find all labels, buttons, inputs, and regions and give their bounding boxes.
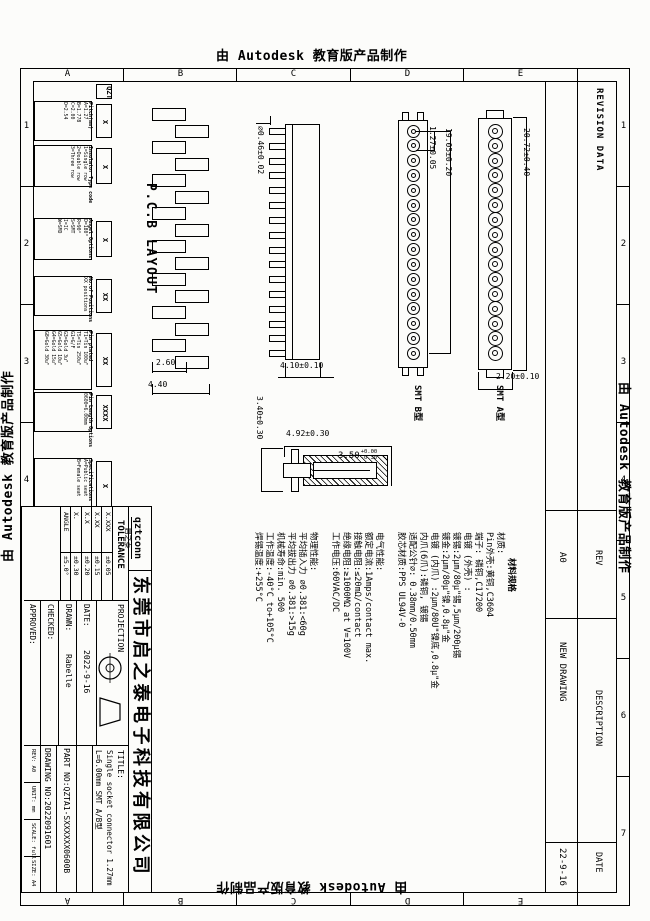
dimension-line [513, 370, 527, 371]
revision-header-date: DATE [594, 852, 603, 872]
tolerance-row-value: ±0.15 [94, 556, 101, 576]
order-field-text: Pin Length Options0600=6.00mm [35, 393, 93, 433]
side-view-pin [269, 202, 286, 209]
title-block-line [92, 745, 93, 893]
order-field-option: T5=Tin 250u" [74, 331, 80, 391]
side-view-pin [269, 128, 286, 135]
zone-tick [20, 422, 33, 423]
smt-b-tab [402, 367, 409, 376]
side-view-pin [269, 306, 286, 313]
tolerance-row-value: ±5.0° [62, 556, 69, 576]
zone-tick [463, 68, 464, 81]
dimension-line [209, 384, 210, 395]
order-field-option: G3=Gold 3u" [61, 331, 67, 391]
zone-letter-top: E [514, 70, 527, 79]
zone-tick [123, 68, 124, 81]
order-field-description-box: Angel OptionsD=180°R=90°S=SMTI=ICW=SMD [34, 218, 92, 260]
zone-number-right: 5 [617, 594, 630, 603]
dimension-line [391, 446, 392, 486]
approved-label: APPROVED: [29, 604, 37, 645]
order-field-code-box: X [96, 221, 112, 257]
material-note-line: Pin外壳:黄铜,C3604 [483, 532, 494, 790]
side-view-pin [269, 350, 286, 357]
order-field-text: Angel OptionsD=180°R=90°S=SMTI=ICW=SMD [35, 219, 93, 261]
pcb-pad [175, 290, 209, 303]
material-note-line: 电气性能: [373, 532, 384, 790]
cad-drawing-sheet: AABBCCDDEE11223344556677 QZTPitch(mm)A=1… [0, 0, 650, 921]
zone-letter-bottom: D [401, 895, 414, 904]
order-field-description-box: Insulator Type code1=Single row2=Double … [34, 145, 92, 187]
zone-tick [617, 776, 630, 777]
order-field-option: 3=Three row [67, 146, 73, 188]
company-logo-text: qztconn [131, 517, 142, 559]
dimension-line [278, 377, 334, 378]
material-note-line [318, 532, 329, 790]
zone-tick [617, 658, 630, 659]
zone-number-right: 1 [617, 122, 630, 131]
material-note-line: 机械寿命:min. 500 [274, 532, 285, 790]
order-field-code: XX [97, 280, 113, 314]
side-view-pin [269, 187, 286, 194]
mini-cell: REV: A0 [30, 749, 36, 772]
order-field-option: XX positions [80, 277, 86, 317]
smt-a-label: SMT A型 [494, 385, 503, 421]
zone-letter-bottom: B [174, 895, 187, 904]
autodesk-banner-bottom: 由 Autodesk 教育版产品制作 [216, 880, 407, 893]
order-field-option: G4=Gold 15u" [48, 331, 54, 391]
mini-cell: SCALE: full [30, 823, 36, 859]
material-note-line: 镀金:2μm/80μ"镍,0.8μ"金 [439, 532, 450, 790]
order-field-title: Specifications [87, 459, 93, 513]
pcb-pad [175, 125, 209, 138]
side-view-pin [269, 261, 286, 268]
company-logo: qztconn 启之泰 [128, 509, 150, 567]
order-field-option: B=1.778 [74, 102, 80, 142]
title-block-line [40, 600, 41, 745]
company-name: 东莞市启之泰电子科技有限公司 [131, 576, 149, 877]
revision-header-description: DESCRIPTION [594, 690, 603, 746]
title-block-line [81, 506, 82, 600]
dimension-line [270, 116, 271, 125]
material-note-line: 胶芯材质:PPS UL94V-0 [395, 532, 406, 790]
zone-tick [577, 68, 578, 81]
dim-section-height: 3.40±0.30 [255, 396, 263, 439]
title-block-line [24, 782, 40, 783]
dim-side-height: 4.10±0.10 [280, 362, 323, 370]
revision-title: REVISION DATA [594, 88, 603, 171]
smt-b-label: SMT B型 [412, 385, 421, 421]
order-field-code-box: X [96, 148, 112, 184]
zone-number-left: 3 [20, 358, 33, 367]
order-field-code-box: XX [96, 279, 112, 313]
title-line2: L=6.00mm SMT A/B型 [95, 750, 103, 830]
order-field-text: Pitch(mm)A=1.27B=1.778C=2.00D=2.54 [35, 102, 93, 142]
material-notes-lines: 材质:Pin外壳:黄铜,C3604端子: 磷铜,C17200电镀 (外壳) :镀… [252, 532, 505, 790]
mini-cell: UNIT: mm [30, 786, 36, 813]
zone-number-right: 3 [617, 358, 630, 367]
dim-pitch: 1.27±0.05 [428, 126, 436, 169]
dim-pin-diameter: ∅0.46±0.02 [256, 126, 264, 174]
revision-entry-rev: A0 [557, 552, 566, 563]
material-note-line: 平均插入力 ∅0.381:<60g [296, 532, 307, 790]
zone-number-right: 6 [617, 712, 630, 721]
dim-span: 19.05±0.20 [444, 128, 452, 176]
checked-label: CHECKED: [47, 604, 55, 640]
revision-header-rev: REV [594, 550, 603, 565]
title-block-line [101, 506, 102, 600]
order-field-option: D=180° [80, 219, 86, 261]
side-view-pin [269, 276, 286, 283]
order-field-code-box: XXXX [96, 395, 112, 429]
zone-tick [617, 186, 630, 187]
zone-tick [123, 893, 124, 906]
title-block-line [58, 600, 59, 745]
dimension-line [152, 371, 186, 372]
zone-letter-bottom: E [514, 895, 527, 904]
material-note-line: 材质: [494, 532, 505, 790]
side-view-body [285, 124, 320, 360]
material-note-line: 绝缘电阻:≥1000MΩ at V=100V [340, 532, 351, 790]
drawing-no: DRAWING NO:2022091601 [43, 748, 51, 849]
part-no: PART NO:QZTA1-SXXXXXX0600B [62, 748, 70, 873]
dimension-line [186, 362, 187, 373]
dim-section-depth: 3.50+0.00-0.30 [338, 450, 377, 461]
pcb-pad [175, 158, 209, 171]
tolerance-row-label: ANGLE [62, 512, 69, 532]
title-block-line [128, 570, 152, 571]
order-field-title: Insulator Type code [87, 146, 93, 188]
date-label: DATE: [83, 604, 91, 627]
revision-entry-date: 22-9-16 [557, 848, 566, 886]
material-note-line: 焊锡温度:+255°C [252, 532, 263, 790]
material-note-line: 接触电阻:≤20mΩ/contact [351, 532, 362, 790]
tolerance-row-label: X.X [83, 512, 90, 524]
title-block-line [60, 552, 112, 553]
material-notes-header: 材料规格 [505, 558, 516, 790]
dimension-line [478, 372, 479, 390]
dim-overall: 20.72±0.40 [522, 128, 530, 176]
material-notes: 材料规格 材质:Pin外壳:黄铜,C3604端子: 磷铜,C17200电镀 (外… [248, 532, 516, 790]
order-field-option: 1=Single row [80, 146, 86, 188]
dimension-line [261, 448, 262, 492]
order-field-description-box: Pin Length Options0600=6.00mm [34, 392, 92, 432]
autodesk-banner-left: 由 Autodesk 教育版产品制作 [2, 371, 15, 562]
order-field-text: No.of PositionsXX positions [35, 277, 93, 317]
zone-tick [577, 893, 578, 906]
order-field-text: Pin platedT1=Tin 100u"T5=Tin 250u"G1=G/F… [35, 331, 93, 391]
zone-number-right: 7 [617, 830, 630, 839]
zone-letter-top: B [174, 70, 187, 79]
order-field-description-box: Pitch(mm)A=1.27B=1.778C=2.00D=2.54 [34, 101, 92, 141]
autodesk-banner-right: 由 Autodesk 教育版产品制作 [617, 382, 630, 573]
dimension-line [256, 123, 270, 124]
dim-section-depth-value: 3.50 [338, 451, 360, 461]
drawn-label: DRAWN: [65, 604, 73, 631]
zone-tick [463, 893, 464, 906]
title-block-line [76, 600, 77, 745]
title-block-line [91, 506, 92, 600]
pcb-pad [152, 339, 186, 352]
material-note-line: 内爪(6爪):磷铜, 镀锡 [417, 532, 428, 790]
title-block-line [70, 506, 71, 600]
title-line1: Single socket connector 1.27mm [106, 750, 114, 885]
order-field-option: A=1.27 [80, 102, 86, 142]
order-field-code: X [97, 222, 113, 258]
projection-label: PROJECTION [116, 604, 124, 652]
tolerance-row-value: ±0.30 [73, 556, 80, 576]
pcb-pad [152, 306, 186, 319]
zone-tick [236, 68, 237, 81]
order-field-option: 2=Double row [74, 146, 80, 188]
section-pin-horizontal [283, 463, 311, 478]
dim-pad-width: 2.60 [156, 359, 175, 367]
title-block-line [60, 506, 61, 600]
order-field-option: G8=Gold 30u" [42, 331, 48, 391]
order-field-option: C=2.00 [67, 102, 73, 142]
order-field-code: X [97, 149, 113, 185]
order-field-option: R=90° [74, 219, 80, 261]
order-field-option: 0600=6.00mm [80, 393, 86, 433]
order-field-option: G5=Gold 10u" [55, 331, 61, 391]
order-code-prefix: QZT [97, 85, 113, 100]
dimension-line [429, 353, 451, 354]
title-block-line [40, 745, 41, 893]
zone-number-left: 4 [20, 476, 33, 485]
order-field-code-box: XX [96, 333, 112, 387]
order-field-option: A=Public seat [80, 459, 86, 513]
side-view-pin [269, 158, 286, 165]
material-note-line: 电镀 (内爪) :2μm/80U"镍底,0.8μ"金 [428, 532, 439, 790]
dim-body-width: 2.20±0.10 [496, 373, 539, 381]
dimension-line [513, 117, 527, 118]
pcb-pad [175, 257, 209, 270]
smt-b-body [398, 120, 428, 368]
order-field-text: SpecificationsA=Public seatB=Female seat [35, 459, 93, 513]
order-field-option: G1=G/F [67, 331, 73, 391]
zone-tick [350, 68, 351, 81]
dim-section-width: 4.92±0.30 [286, 430, 329, 438]
material-note-line: 适配公针∅: 0.38mm/0.50mm [406, 532, 417, 790]
order-field-code: X [97, 462, 113, 510]
material-note-line: 工作电压:60VAC/DC [329, 532, 340, 790]
third-angle-projection-icon [97, 652, 123, 737]
order-field-code: X [97, 105, 113, 139]
tolerance-header: TOLERANCE [115, 520, 124, 569]
material-note-line: 物理性能: [307, 532, 318, 790]
side-view-pin [269, 321, 286, 328]
material-note-line: 端子: 磷铜,C17200 [472, 532, 483, 790]
pcb-pad [175, 323, 209, 336]
zone-letter-bottom: C [287, 895, 300, 904]
pcb-pad [175, 224, 209, 237]
material-note-line [384, 532, 395, 790]
material-note-line: 工作温度:-40°C to+105°C [263, 532, 274, 790]
pcb-pad [175, 191, 209, 204]
zone-number-right: 2 [617, 240, 630, 249]
order-field-option: T1=Tin 100u" [80, 331, 86, 391]
zone-tick [20, 304, 33, 305]
title-block-line [56, 745, 57, 893]
title-block-line [76, 745, 77, 893]
dimension-line [152, 362, 153, 373]
pcb-pad [175, 356, 209, 369]
side-view-pin [269, 247, 286, 254]
zone-number-left: 2 [20, 240, 33, 249]
zone-number-left: 1 [20, 122, 33, 131]
title-block-line [112, 506, 113, 600]
dimension-line [262, 448, 283, 449]
drawn-value: Rabelle [64, 654, 72, 688]
order-field-code-box: X [96, 461, 112, 509]
title-label: TITLE: [116, 750, 124, 779]
smt-a-body [478, 118, 512, 370]
pcb-pad [152, 141, 186, 154]
material-note-line: 镀锡:2μm/80μ"锡,5μm/200μ锡 [450, 532, 461, 790]
dimension-line [284, 446, 392, 447]
title-block-line [24, 819, 40, 820]
order-field-description-box: SpecificationsA=Public seatB=Female seat [34, 458, 92, 512]
tolerance-row-label: X.XXX [104, 512, 111, 532]
revision-entry-description: NEW DRAWING [557, 642, 566, 702]
zone-tick [617, 304, 630, 305]
side-view-pin [269, 217, 286, 224]
dimension-line [284, 446, 285, 457]
zone-tick [20, 186, 33, 187]
pcb-pad [152, 207, 186, 220]
autodesk-banner-top: 由 Autodesk 教育版产品制作 [216, 50, 407, 63]
side-view-pin [269, 172, 286, 179]
order-field-code-box: X [96, 104, 112, 138]
material-note-line: 额定电流:1Amps/contact max. [362, 532, 373, 790]
date-value: 2022-9-16 [82, 650, 90, 693]
order-field-description-box: Pin platedT1=Tin 100u"T5=Tin 250u"G1=G/F… [34, 330, 92, 390]
dim-pad-span: 4.40 [148, 381, 167, 389]
smt-a-tab [486, 110, 504, 119]
zone-letter-top: C [287, 70, 300, 79]
smt-b-tab [417, 112, 424, 121]
company-logo-subtext: 启之泰 [124, 509, 131, 567]
zone-letter-top: A [61, 70, 74, 79]
tolerance-row-label: X.XX [94, 512, 101, 528]
order-field-option: B=Female seat [74, 459, 80, 513]
order-field-option: D=2.54 [61, 102, 67, 142]
order-field-description-box: No.of PositionsXX positions [34, 276, 92, 316]
side-view-pin [269, 143, 286, 150]
pcb-pad [152, 108, 186, 121]
order-field-title: No.of Positions [87, 277, 93, 317]
side-view-pin [269, 232, 286, 239]
pcb-pad [152, 273, 186, 286]
order-field-code: XXXX [97, 396, 113, 430]
smt-b-tab [402, 112, 409, 121]
order-field-text: Insulator Type code1=Single row2=Double … [35, 146, 93, 188]
order-field-option: I=IC [61, 219, 67, 261]
section-contact-line [313, 470, 370, 471]
zone-tick [236, 893, 237, 906]
material-note-line: 电镀 (外壳) : [461, 532, 472, 790]
order-field-option: W=SMD [55, 219, 61, 261]
order-field-title: Angel Options [87, 219, 93, 261]
pcb-pad [152, 240, 186, 253]
dim-section-depth-tolerance: +0.00-0.30 [361, 450, 378, 461]
side-view-pin [269, 291, 286, 298]
tolerance-row-value: ±0.20 [83, 556, 90, 576]
order-field-title: Pin Length Options [87, 393, 93, 433]
side-view-pin [269, 335, 286, 342]
zone-letter-top: D [401, 70, 414, 79]
zone-letter-bottom: A [61, 895, 74, 904]
order-code-prefix-box: QZT [96, 84, 112, 99]
smt-b-tab [417, 367, 424, 376]
order-field-code: XX [97, 334, 113, 388]
order-field-option: S=SMT [67, 219, 73, 261]
pcb-pad [152, 174, 186, 187]
dimension-line [262, 491, 283, 492]
tolerance-row-label: X. [73, 512, 80, 520]
zone-tick [350, 893, 351, 906]
tolerance-row-value: ±0.05 [104, 556, 111, 576]
order-field-title: Pin plated [87, 331, 93, 391]
mini-cell: SIZE: A4 [30, 860, 36, 887]
dimension-line [152, 393, 209, 394]
material-note-line: 平均拔出力 ∅0.381:>15g [285, 532, 296, 790]
order-field-title: Pitch(mm) [87, 102, 93, 142]
side-view-seam-line [292, 124, 293, 360]
